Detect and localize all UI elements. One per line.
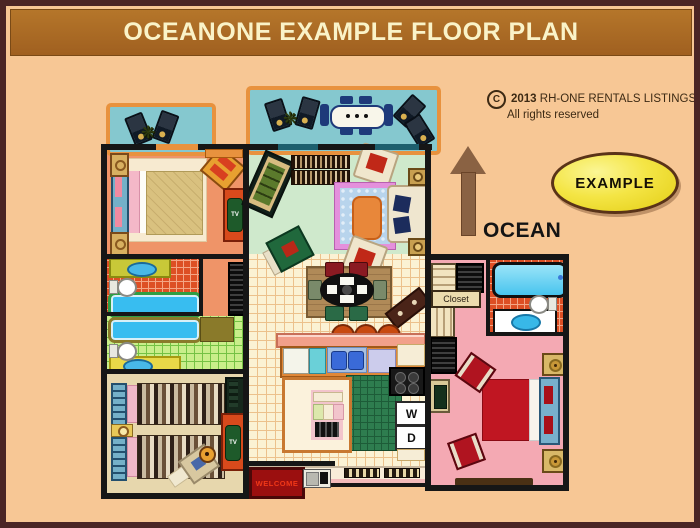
entry-console (303, 469, 331, 488)
area-rug (291, 155, 350, 169)
wall (101, 254, 249, 259)
copyright-owner: RH-ONE RENTALS LISTINGS (540, 93, 696, 105)
example-badge: EXAMPLE (551, 152, 679, 214)
copyright-rights: All rights reserved (507, 109, 696, 122)
wall (425, 254, 569, 260)
page-title: OCEANONE EXAMPLE FLOOR PLAN (123, 18, 578, 47)
ocean-label: OCEAN (483, 219, 561, 243)
cutting-board (309, 348, 326, 374)
dining-chair (325, 306, 344, 321)
dining-table (320, 273, 374, 307)
master-bed (482, 377, 556, 441)
kitchen-sink (327, 347, 367, 373)
door (205, 149, 243, 158)
dining-chair (349, 306, 368, 321)
copyright-year: 2013 (511, 93, 537, 105)
dining-chair (373, 280, 387, 300)
wall (243, 461, 335, 466)
patio-table (330, 105, 386, 129)
patio-chair (320, 104, 329, 126)
bath1-vanity (109, 258, 171, 278)
toilet (109, 278, 135, 294)
corridor-door (384, 468, 420, 478)
wall (101, 369, 249, 374)
wall-tv (429, 379, 450, 413)
patio-chair (359, 96, 372, 104)
corridor-door (344, 468, 380, 478)
washer: W (395, 401, 428, 426)
bathtub (108, 317, 202, 343)
nightstand (110, 232, 129, 256)
toilet (531, 295, 557, 311)
copyright-icon: C (487, 90, 506, 109)
wall (101, 493, 251, 499)
tv-stand: TV (221, 413, 245, 471)
wall (243, 144, 249, 499)
kitchen-island (282, 377, 352, 453)
stove (389, 367, 425, 396)
wall (101, 144, 107, 499)
wall (101, 312, 203, 316)
ocean-arrow-shaft (461, 172, 476, 236)
refrigerator (283, 348, 309, 374)
sliding-door (375, 144, 419, 150)
cabinet (397, 449, 425, 461)
bedroom1-bed (111, 170, 201, 234)
closet-clothes (456, 263, 484, 293)
welcome-mat: WELCOME (249, 467, 305, 499)
closet-label: Closet (431, 290, 481, 308)
sink (511, 314, 541, 331)
sink (127, 262, 157, 277)
dryer: D (395, 425, 428, 450)
header-bar: OCEANONE EXAMPLE FLOOR PLAN (10, 9, 692, 56)
balcony-door (156, 144, 198, 150)
copyright-notice: C 2013 RH-ONE RENTALS LISTINGS All right… (487, 90, 696, 122)
plant-icon: ❋ (283, 110, 297, 127)
master-vanity (493, 309, 557, 334)
wall (199, 254, 203, 316)
master-bathtub (492, 262, 568, 298)
wall (486, 258, 490, 336)
toilet (109, 342, 135, 358)
twin-bed (111, 383, 223, 423)
wall (425, 485, 569, 491)
nightstand (111, 424, 133, 437)
sliding-door (278, 144, 318, 150)
nightstand (110, 153, 129, 177)
wall (425, 144, 431, 491)
wall (563, 254, 569, 491)
cabinet (397, 344, 425, 366)
wall (486, 332, 569, 336)
dresser (430, 337, 457, 374)
patio-chair (340, 96, 353, 104)
ocean-arrow-icon (450, 146, 486, 174)
side-table (199, 446, 216, 463)
floor-plan-page: OCEANONE EXAMPLE FLOOR PLAN C 2013 RH-ON… (0, 0, 700, 528)
closet-shelves (429, 306, 455, 338)
bath2-counter (200, 317, 234, 342)
plant-icon: ❋ (141, 124, 155, 141)
tv: TV (225, 425, 241, 461)
